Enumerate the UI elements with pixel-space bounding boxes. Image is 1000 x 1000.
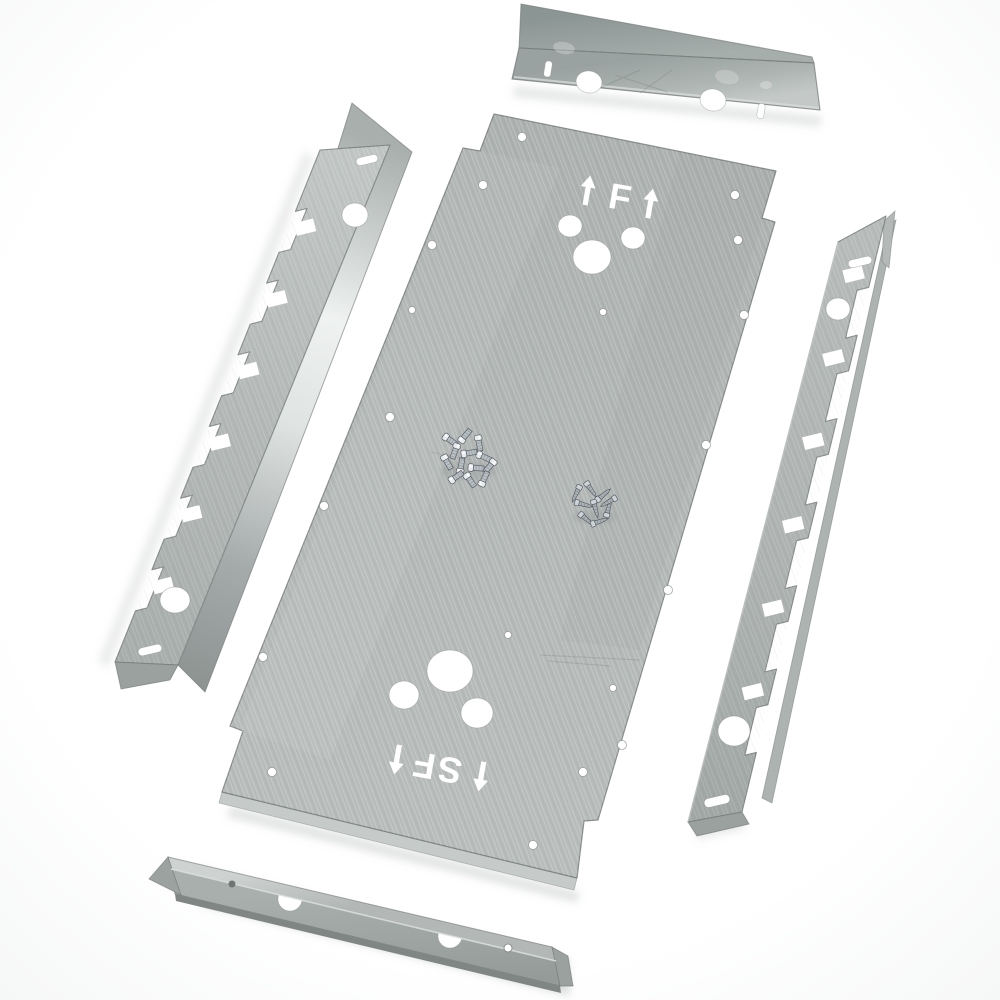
plate-small-hole (579, 768, 588, 777)
rail-end-tab (115, 662, 178, 689)
rail-hole (342, 203, 368, 227)
plate-large-hole (427, 650, 473, 692)
plate-small-hole (320, 502, 329, 511)
plate-small-hole (409, 307, 416, 314)
plate-small-hole (518, 133, 527, 142)
plate-large-hole (558, 215, 582, 237)
plate-small-hole (731, 191, 740, 200)
plate-small-hole (740, 311, 749, 320)
plate-large-hole (389, 681, 419, 709)
plate-small-hole (529, 841, 538, 850)
rail-hole (718, 716, 750, 746)
bracket-dimple (760, 81, 772, 89)
plate-small-hole (428, 241, 437, 250)
rail-hole (160, 587, 190, 613)
rail-hole (826, 298, 850, 320)
plate-small-hole (259, 653, 268, 662)
plate-small-hole (664, 586, 673, 595)
bracket-face (171, 869, 560, 986)
plate-small-hole (268, 768, 277, 777)
plate-small-hole (618, 741, 627, 750)
plate-small-hole (505, 632, 512, 639)
plate-large-hole (461, 698, 493, 728)
bracket-hole (504, 944, 512, 952)
plate-small-hole (610, 685, 617, 692)
plate-small-hole (734, 236, 743, 245)
plate-small-hole (479, 181, 488, 190)
photo-canvas: F SF (0, 0, 1000, 1000)
plate-small-hole (386, 413, 395, 422)
plate-large-hole (621, 227, 645, 249)
plate-small-hole (600, 309, 607, 316)
plate-small-hole (702, 441, 711, 450)
product-photo: F SF (0, 0, 1000, 1000)
plate-large-hole (573, 240, 611, 274)
bracket-hole (229, 881, 236, 888)
